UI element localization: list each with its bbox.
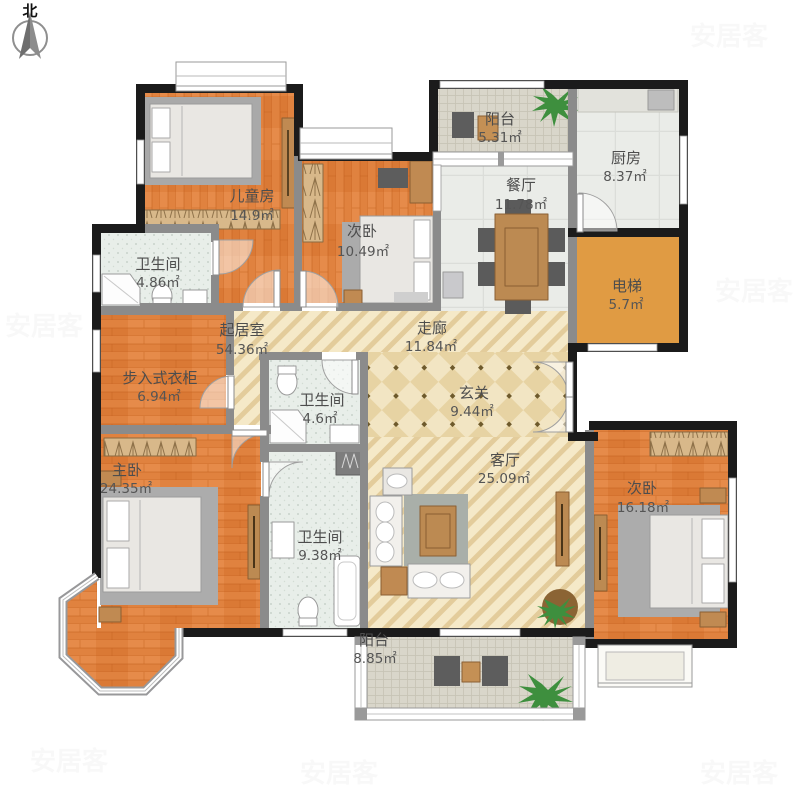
window-balcony-sill — [433, 152, 573, 166]
area-family: 54.36㎡ — [216, 342, 269, 358]
bath1-sink — [183, 290, 207, 305]
b2r-bed — [650, 515, 728, 608]
svg-text:安居客: 安居客 — [715, 276, 794, 307]
area-elevator: 5.7㎡ — [609, 297, 644, 313]
dining-fridge — [443, 272, 463, 298]
window-children-top — [176, 62, 286, 91]
balb-chair-2 — [482, 656, 508, 686]
svg-text:安居客: 安居客 — [30, 746, 109, 777]
window-bath3-bottom — [283, 629, 347, 636]
label-bedroom2-right: 次卧 — [627, 479, 657, 497]
label-master: 主卧 — [112, 461, 142, 479]
window-bath1-left — [93, 255, 100, 292]
b2t-stool — [344, 290, 362, 304]
label-children: 儿童房 — [229, 187, 274, 205]
utility-shaft — [336, 448, 364, 475]
room-family-strip — [234, 352, 260, 425]
north-label: 北 — [22, 2, 37, 20]
door-elevator — [588, 344, 657, 351]
area-corridor: 11.84㎡ — [405, 339, 458, 355]
label-corridor: 走廊 — [417, 319, 447, 337]
balb-table — [462, 662, 480, 682]
window-b2t-side — [433, 165, 441, 211]
area-bath1: 4.86㎡ — [136, 275, 180, 291]
label-dining: 餐厅 — [506, 176, 536, 194]
svg-text:安居客: 安居客 — [300, 758, 379, 789]
living-sofa — [370, 496, 402, 566]
area-bedroom2-top: 10.49㎡ — [337, 244, 390, 260]
area-foyer: 9.44㎡ — [450, 404, 494, 420]
label-bath2: 卫生间 — [299, 391, 344, 409]
area-bath3: 9.38㎡ — [298, 548, 342, 564]
b2r-closet — [650, 432, 728, 456]
label-balcony-top: 阳台 — [485, 110, 515, 128]
area-balcony-top: 5.31㎡ — [478, 130, 522, 146]
master-nightstand-2 — [99, 607, 121, 622]
kitchen-stove — [648, 90, 674, 110]
door-balcony-slide — [440, 629, 520, 636]
balb-chair-1 — [434, 656, 460, 686]
area-master: 24.35㎡ — [100, 481, 153, 497]
svg-text:安居客: 安居客 — [700, 758, 779, 789]
area-balcony-bottom: 8.85㎡ — [353, 651, 397, 667]
area-children: 14.9㎡ — [230, 208, 274, 224]
label-bedroom2-top: 次卧 — [347, 222, 377, 240]
window-children-left — [137, 140, 144, 184]
label-elevator: 电梯 — [612, 277, 642, 295]
living-loveseat — [408, 564, 470, 598]
window-b2r-bay — [598, 645, 692, 687]
b2r-nightstand-2 — [700, 612, 726, 627]
children-bed — [143, 97, 261, 185]
north-compass: 北 — [13, 2, 47, 59]
label-balcony-bottom: 阳台 — [359, 631, 389, 649]
label-living: 客厅 — [490, 451, 520, 469]
area-closet: 6.94㎡ — [137, 389, 181, 405]
svg-text:安居客: 安居客 — [690, 21, 769, 52]
master-closet-strip — [104, 438, 196, 456]
area-dining: 11.78㎡ — [495, 197, 548, 213]
b2t-shelf — [410, 161, 432, 203]
area-kitchen: 8.37㎡ — [603, 169, 647, 185]
balt-chair — [452, 112, 474, 138]
master-bed — [103, 497, 201, 592]
area-bedroom2-right: 16.18㎡ — [617, 500, 670, 516]
room-family-band — [234, 311, 568, 352]
living-armchair-2 — [381, 567, 407, 595]
label-kitchen: 厨房 — [611, 149, 641, 167]
label-foyer: 玄关 — [459, 384, 489, 402]
window-kitchen-right — [680, 136, 687, 204]
label-closet: 步入式衣柜 — [122, 369, 197, 387]
b2t-wardrobe — [303, 164, 323, 242]
label-bath3: 卫生间 — [297, 528, 342, 546]
bath2-sink — [330, 425, 359, 443]
window-balcony-top — [440, 81, 544, 88]
window-b2r-right — [729, 478, 736, 582]
window-closet-left — [93, 330, 100, 372]
bath3-sink — [272, 522, 294, 558]
label-bath1: 卫生间 — [135, 255, 180, 273]
area-bath2: 4.6㎡ — [303, 411, 338, 427]
label-family: 起居室 — [219, 321, 264, 339]
b2t-tv — [378, 168, 408, 188]
floorplan: 安居客 安居客 安居客 安居客 安居客 安居客 北 — [0, 0, 800, 800]
window-b2t-top — [300, 128, 392, 159]
b2r-nightstand-1 — [700, 488, 726, 503]
svg-text:安居客: 安居客 — [5, 311, 84, 342]
area-living: 25.09㎡ — [478, 471, 531, 487]
